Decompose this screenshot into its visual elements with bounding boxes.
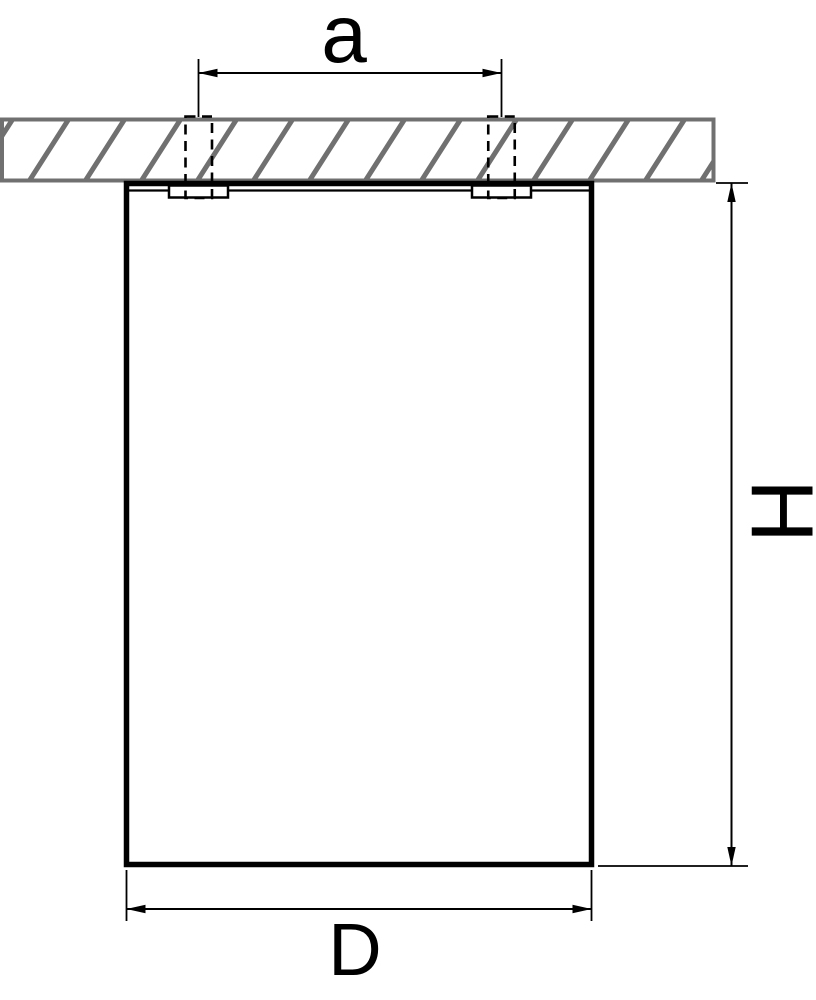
drawing-canvas: a H D — [0, 0, 816, 1000]
ceiling-section — [0, 114, 744, 186]
fixture-group — [127, 117, 592, 865]
arrowhead-h-bottom-icon — [727, 847, 735, 866]
dimension-height: H — [598, 183, 816, 866]
arrowhead-d-left-icon — [127, 905, 146, 913]
mounting-tab-right — [472, 186, 531, 198]
fixture-body — [127, 184, 592, 865]
label-diameter: D — [328, 908, 381, 991]
fixture-dimension-drawing: a H D — [0, 0, 816, 1000]
label-height: H — [733, 479, 816, 543]
label-hole-spacing: a — [321, 0, 367, 80]
dimension-diameter: D — [127, 870, 592, 991]
arrowhead-d-right-icon — [573, 905, 592, 913]
arrowhead-a-right-icon — [483, 69, 502, 77]
mounting-tab-left — [169, 186, 228, 198]
arrowhead-h-top-icon — [727, 183, 735, 202]
arrowhead-a-left-icon — [199, 69, 218, 77]
dimension-hole-spacing: a — [199, 0, 502, 117]
